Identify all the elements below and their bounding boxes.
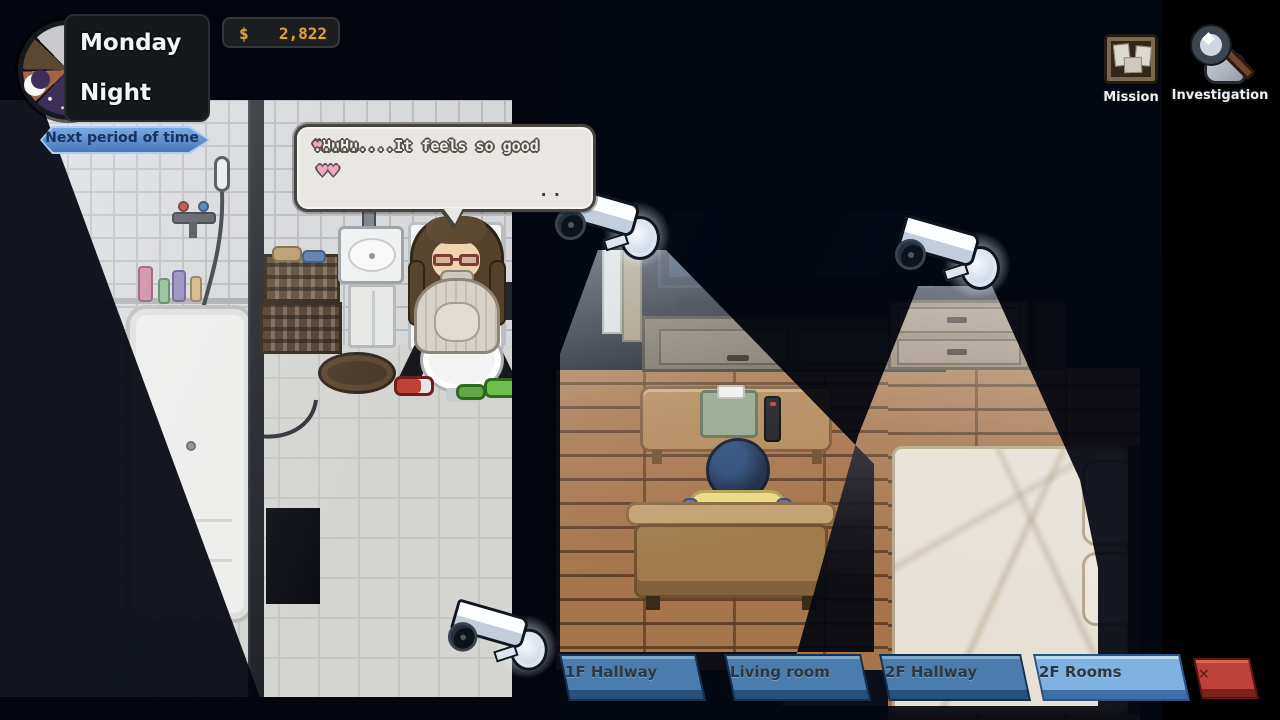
couch-seat	[634, 524, 828, 598]
security-camera-bedroom	[898, 216, 1010, 308]
x-icon: ✕	[1198, 660, 1209, 688]
hot-water-knob	[178, 201, 189, 212]
laundry-clothes	[302, 250, 326, 263]
window-right	[946, 86, 1070, 216]
table-leg	[652, 450, 662, 464]
couch-leg	[646, 596, 660, 610]
close-button[interactable]: ✕	[1193, 658, 1257, 689]
couch-leg	[802, 596, 816, 610]
shower-head	[214, 156, 230, 192]
money-amount: 2,822	[279, 24, 327, 43]
tv-stand-drawer	[659, 329, 789, 365]
pillow	[1082, 460, 1134, 546]
tv-screen	[669, 211, 923, 277]
soundbar	[676, 296, 886, 308]
table-leg	[812, 450, 822, 464]
tub-drain	[186, 441, 196, 451]
dialogue-line-2: ♥♥	[317, 161, 339, 182]
mission-icon[interactable]	[1104, 34, 1158, 84]
green-shoe	[484, 378, 512, 398]
period-label: Night	[80, 80, 151, 106]
camera-lens-icon	[448, 622, 477, 651]
tissue-box	[700, 390, 758, 438]
laundry-basket	[260, 302, 342, 354]
game-screen: "HuHu....It feels so good ♥ ....... ♥♥ .…	[0, 0, 1280, 720]
speech-bubble[interactable]: "HuHu....It feels so good ♥ ....... ♥♥ .…	[294, 124, 596, 212]
side-cabinet	[1032, 300, 1066, 370]
sink-basin	[338, 226, 404, 284]
shampoo-bottle	[172, 270, 186, 302]
bathroom-partition-wall	[248, 100, 264, 697]
shampoo-bottle	[138, 266, 153, 302]
couch-backrest	[626, 502, 836, 526]
girl-glasses	[459, 254, 479, 266]
shampoo-bottle	[158, 278, 170, 304]
bathtub	[126, 305, 254, 623]
green-shoe	[456, 384, 486, 400]
speech-bubble-tail	[443, 208, 463, 224]
sink-cabinet	[348, 284, 396, 348]
continue-indicator: ..	[539, 181, 565, 201]
girl-glasses	[433, 254, 453, 266]
drawer-handle	[947, 317, 967, 323]
pillow	[1082, 552, 1134, 626]
tab-2f-rooms[interactable]: 2F Rooms	[1033, 654, 1188, 690]
drawer-handle	[947, 349, 967, 355]
camera-lens-icon	[895, 239, 926, 270]
tab-2f-hallway[interactable]: 2F Hallway	[879, 654, 1029, 690]
cold-water-knob	[198, 201, 209, 212]
bath-mat	[318, 352, 396, 394]
dark-mat	[266, 508, 320, 604]
faucet-spout	[189, 222, 197, 238]
window-left	[792, 86, 922, 216]
dollar-icon: $	[239, 24, 249, 43]
dresser	[888, 300, 1030, 370]
security-camera-hallway	[451, 600, 557, 687]
mission-label: Mission	[1096, 90, 1166, 105]
next-period-button[interactable]: Next period of time	[40, 126, 210, 154]
day-label: Monday	[80, 30, 181, 56]
girl-arms	[434, 302, 480, 342]
magnifier-glass-icon	[1192, 26, 1230, 64]
tv-remote	[764, 396, 781, 442]
drawer-handle	[727, 355, 749, 361]
tab-living-room[interactable]: Living room	[724, 654, 869, 690]
tissue-paper	[717, 385, 745, 399]
soap-bottle	[190, 276, 202, 302]
mission-paper	[1124, 57, 1143, 74]
red-sneaker	[394, 376, 434, 396]
investigation-label: Investigation	[1164, 88, 1276, 103]
tab-1f-hallway[interactable]: 1F Hallway	[559, 654, 704, 690]
investigation-icon[interactable]	[1190, 26, 1250, 88]
moon-icon	[24, 74, 46, 96]
sink-drain	[369, 253, 375, 259]
shower-shelf	[0, 298, 250, 304]
laundry-clothes	[272, 246, 302, 262]
money-display: $ 2,822	[222, 17, 340, 48]
television	[658, 202, 934, 288]
camera-lens-icon	[555, 209, 586, 240]
glasses-bridge	[452, 258, 460, 261]
